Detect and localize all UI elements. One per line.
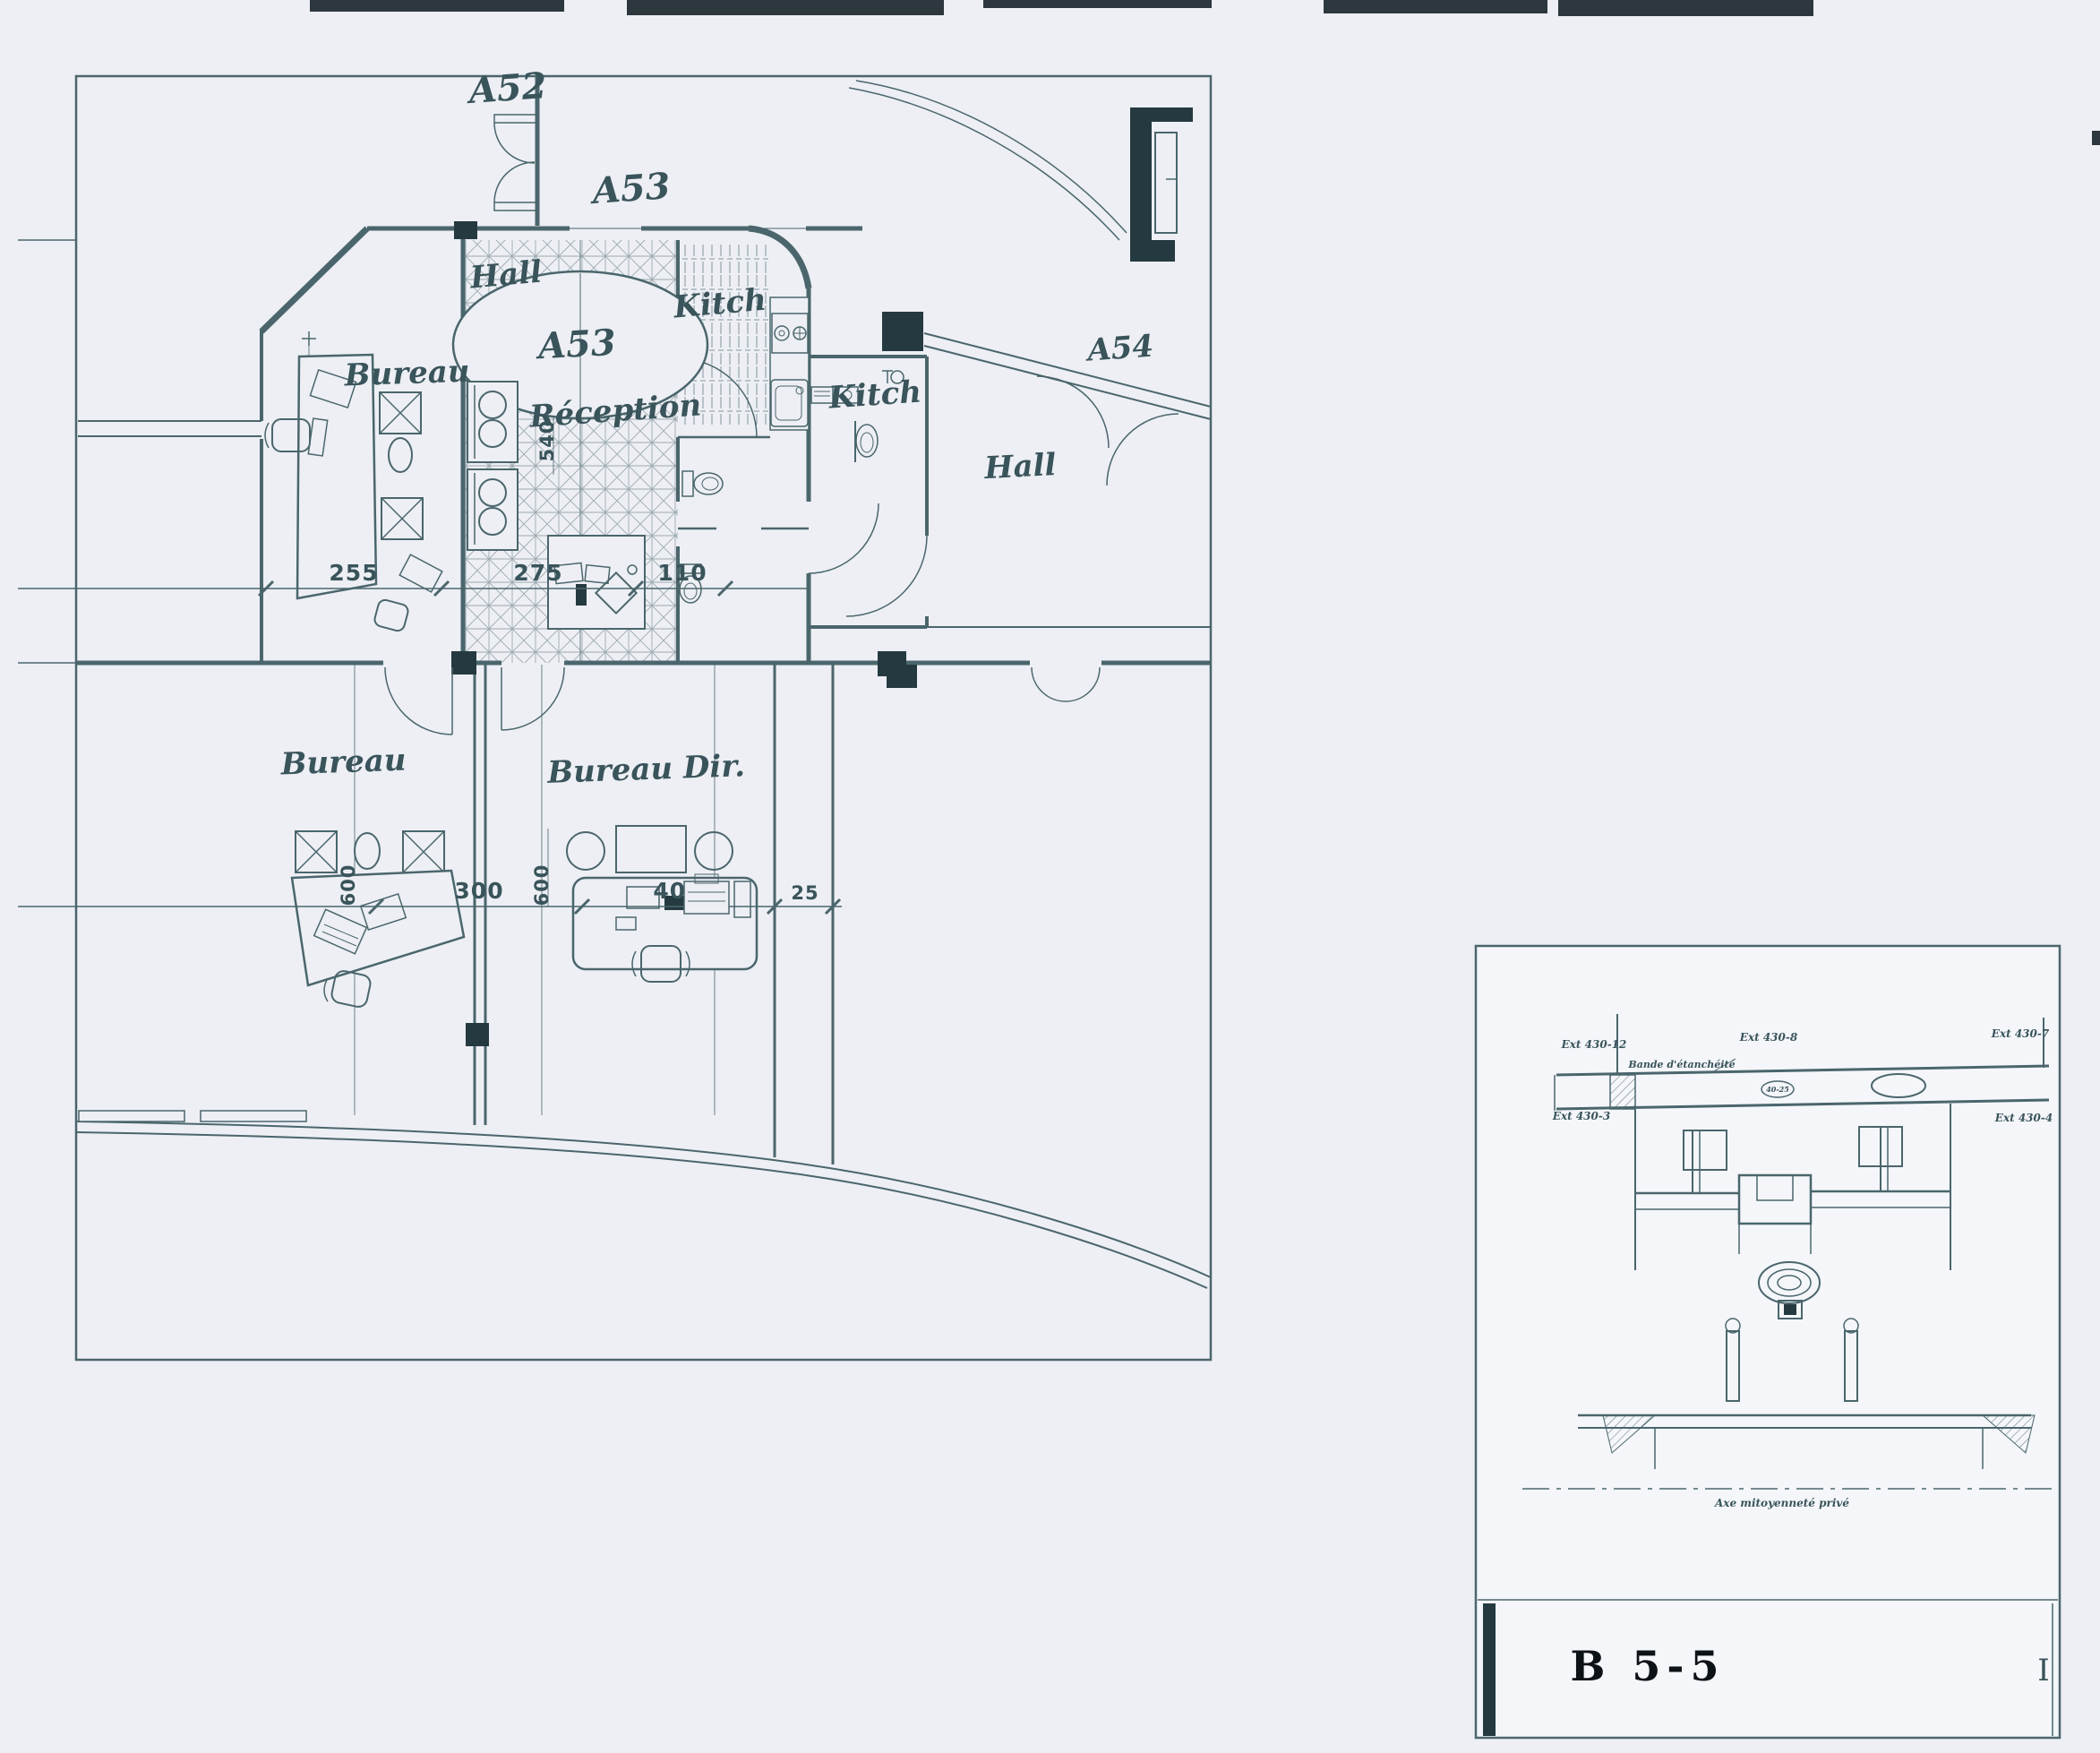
axis-label: Axe mitoyenneté privé xyxy=(1714,1497,1849,1509)
floor-plan-svg: 255 275 110 300 400 25 540 600 600 A52 A… xyxy=(0,0,2100,1753)
side-table-icon xyxy=(381,498,423,539)
dimension-lines: 255 275 110 300 400 25 540 600 600 xyxy=(18,420,842,914)
room-label-bureau-bottom: Bureau xyxy=(279,743,407,783)
chair-icon xyxy=(373,598,410,632)
chair-icon xyxy=(567,832,604,870)
membrane-label: Bande d'étanchéité xyxy=(1627,1059,1735,1070)
side-table-icon xyxy=(380,392,421,434)
dimension-25: 25 xyxy=(791,882,819,904)
bathroom-fixtures xyxy=(680,425,878,603)
main-floor-plan: 255 275 110 300 400 25 540 600 600 A52 A… xyxy=(18,64,1211,1360)
room-label-a54: A54 xyxy=(1084,329,1154,369)
room-label-hall-right: Hall xyxy=(982,447,1057,486)
paper-icon xyxy=(399,554,442,592)
elevator-detail xyxy=(1130,107,1193,262)
room-label-a52: A52 xyxy=(464,64,548,112)
dimension-300: 300 xyxy=(454,878,503,904)
dimension-600-left: 600 xyxy=(338,864,359,907)
detail-inset: 40-25 Ext 430-12 Ext 430-8 Ext 430-7 Ext… xyxy=(1476,946,2060,1738)
ext-annotation: Ext 430-3 xyxy=(1552,1110,1610,1122)
dimension-255: 255 xyxy=(329,560,378,586)
bureau-bottomleft-furniture xyxy=(292,831,464,1009)
computer-tower-icon xyxy=(576,584,587,606)
meeting-table-icon xyxy=(616,826,686,872)
washbasin-icon xyxy=(856,425,878,457)
scan-smudges xyxy=(310,0,2100,145)
ext-annotation: Ext 430-7 xyxy=(1991,1027,2050,1040)
inset-title: B 5-5 xyxy=(1571,1642,1726,1690)
scanned-floor-plan-page: 255 275 110 300 400 25 540 600 600 A52 A… xyxy=(0,0,2100,1753)
ext-annotation: Ext 430-12 xyxy=(1561,1038,1627,1051)
survey-cross-icon xyxy=(302,331,316,346)
margin-mark: I xyxy=(2037,1653,2049,1689)
chair-icon xyxy=(695,832,733,870)
oval-mark-label: 40-25 xyxy=(1766,1085,1789,1094)
kitchen1-appliances xyxy=(770,297,809,430)
dimension-600-right: 600 xyxy=(531,864,553,907)
dimension-275: 275 xyxy=(513,560,562,586)
hatched-wall-block xyxy=(1610,1075,1635,1109)
room-label-bureau-top: Bureau xyxy=(343,354,470,394)
room-label-a53-top: A53 xyxy=(587,165,672,212)
printer-icon xyxy=(684,881,729,914)
room-label-a53-room: A53 xyxy=(534,322,617,368)
side-table-icon xyxy=(403,831,444,872)
stool-icon xyxy=(355,833,380,869)
corridor-curves xyxy=(849,81,1193,262)
room-label-bureau-dir: Bureau Dir. xyxy=(546,748,746,791)
title-block-bar xyxy=(1483,1603,1496,1736)
stool-icon xyxy=(389,438,412,472)
side-table-icon xyxy=(296,831,337,872)
room-labels: A52 A53 A53 A54 Hall Hall Kitch Kitch Ré… xyxy=(279,64,1154,791)
room-label-kitch-right: Kitch xyxy=(827,374,922,416)
room-label-hall-main: Hall xyxy=(467,254,543,296)
toilet-icon xyxy=(682,471,723,496)
curved-facade xyxy=(76,1111,1211,1288)
dimension-110: 110 xyxy=(657,560,707,586)
ext-annotation: Ext 430-8 xyxy=(1739,1031,1798,1044)
ext-annotation: Ext 430-4 xyxy=(1994,1112,2053,1124)
